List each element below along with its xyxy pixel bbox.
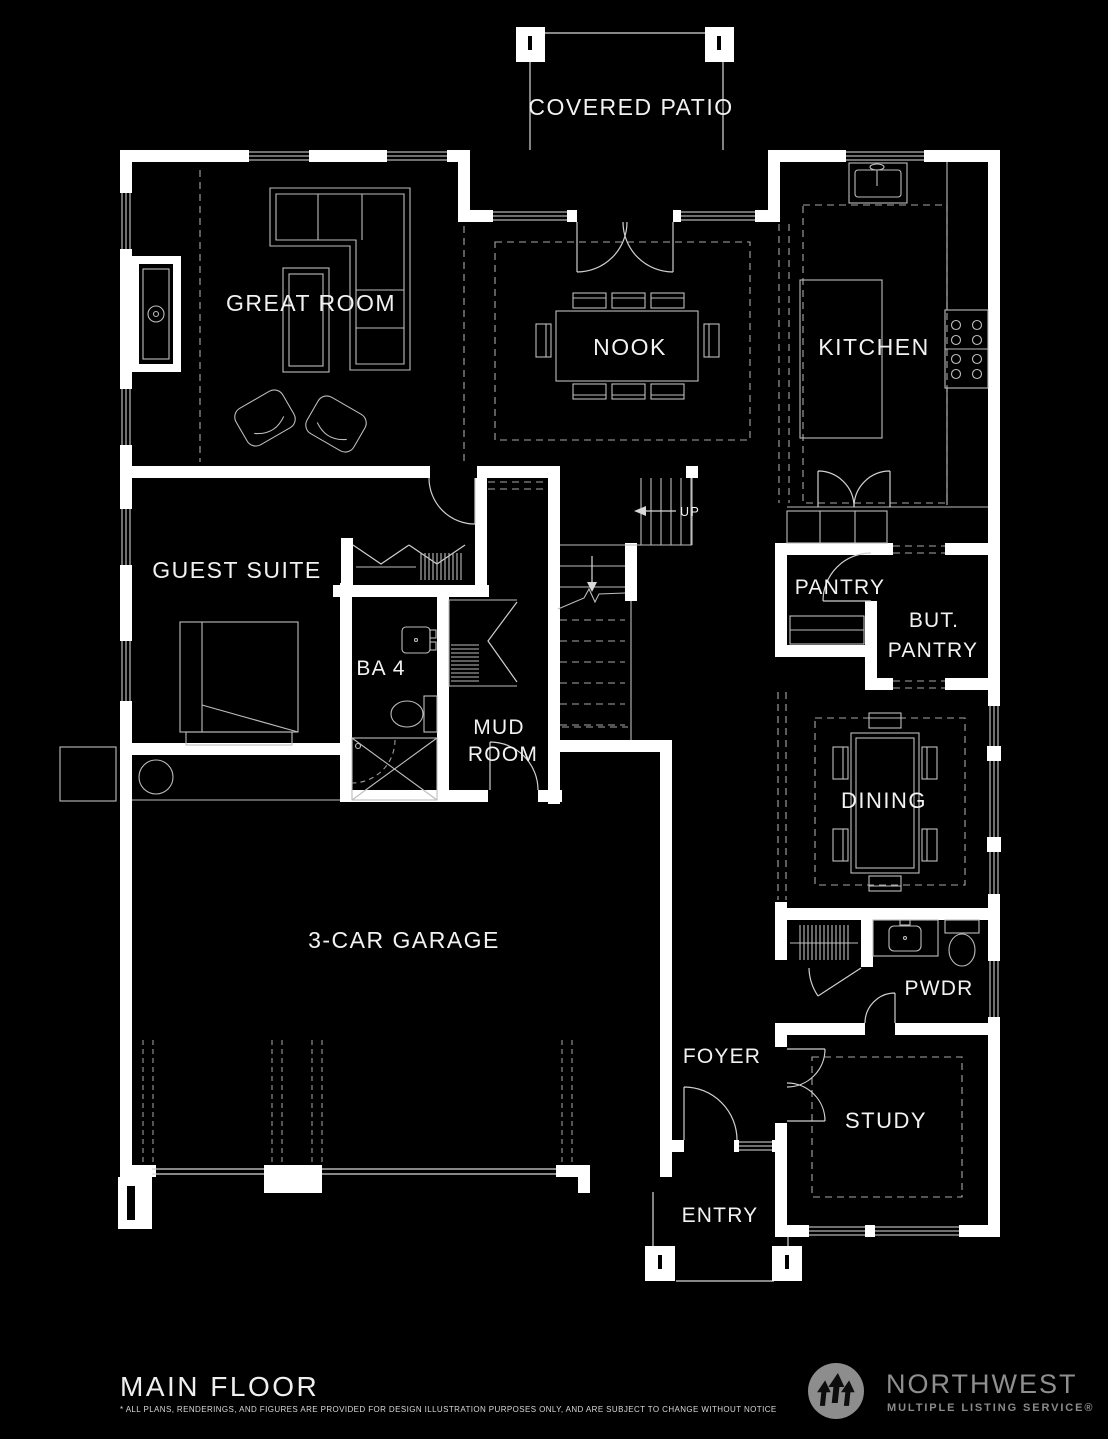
footer: MAIN FLOOR * ALL PLANS, RENDERINGS, AND …: [120, 1371, 777, 1414]
logo-tagline: MULTIPLE LISTING SERVICE®: [887, 1402, 1094, 1414]
label-stairs-up: UP: [680, 505, 700, 519]
label-pantry: PANTRY: [795, 576, 885, 599]
garage-door-tracks: [143, 1040, 572, 1163]
window: [243, 150, 315, 162]
window-dining: [987, 700, 1001, 900]
coat-closet: [790, 925, 858, 960]
powder-door: [865, 993, 895, 1023]
kitchen-french-door-right: [854, 471, 890, 507]
guest-closet-bifold: [353, 545, 465, 564]
powder-sink: [873, 920, 938, 956]
label-butlers-pantry: BUT.PANTRY: [888, 609, 978, 662]
window: [120, 635, 132, 707]
label-bath4: BA 4: [356, 657, 405, 680]
nwmls-logo: NORTHWEST MULTIPLE LISTING SERVICE®: [808, 1363, 1094, 1419]
window: [840, 150, 930, 162]
label-entry: ENTRY: [682, 1204, 759, 1227]
label-nook: NOOK: [593, 334, 667, 360]
window: [487, 210, 573, 222]
pantry-shelves: [790, 616, 864, 644]
patio-french-door-right: [623, 222, 673, 272]
stairs: [558, 478, 692, 740]
window: [381, 150, 453, 162]
hall-cabinet: [787, 511, 887, 543]
water-heater: [139, 760, 173, 794]
patio-pillar: [516, 27, 545, 62]
stair-break-line: [558, 589, 625, 609]
label-covered-patio: COVERED PATIO: [528, 94, 733, 120]
floor-title: MAIN FLOOR: [120, 1371, 319, 1402]
kitchen-french-door-left: [818, 471, 854, 507]
entry-pillar: [645, 1246, 675, 1281]
window: [120, 187, 132, 255]
window: [120, 383, 132, 451]
bed: [180, 622, 298, 745]
study-door-lower: [787, 1083, 825, 1121]
label-study: STUDY: [845, 1108, 927, 1133]
label-garage: 3-CAR GARAGE: [308, 927, 500, 953]
up-arrowhead: [634, 506, 646, 516]
window: [803, 1225, 871, 1237]
nwmls-trees-icon: [808, 1363, 864, 1419]
mud-closet: [449, 600, 517, 686]
floor-plan-canvas: COVERED PATIO GREAT ROOM NOOK KITCHEN GU…: [0, 0, 1108, 1439]
label-dining: DINING: [841, 788, 927, 813]
mud-closet-bifold: [488, 602, 517, 682]
sectional-sofa: [270, 188, 410, 370]
garage-doors: [152, 1169, 556, 1174]
exterior-pad: [60, 747, 116, 801]
coat-closet-door: [809, 968, 861, 996]
label-mud-room: MUDROOM: [468, 716, 538, 766]
patio-french-door-left: [577, 222, 627, 272]
fireplace: [131, 256, 181, 372]
armchair: [302, 392, 370, 455]
entry-pillar: [772, 1246, 802, 1281]
powder-toilet: [945, 920, 979, 966]
window-sidelite: [734, 1140, 777, 1152]
bath4-sink: [402, 627, 436, 653]
logo-name: NORTHWEST: [886, 1369, 1078, 1399]
window: [869, 1225, 965, 1237]
window: [675, 210, 761, 222]
guest-suite-door: [429, 478, 475, 524]
coffee-table: [283, 268, 329, 372]
window: [988, 955, 1000, 1023]
range: [945, 310, 988, 388]
window: [120, 503, 132, 571]
label-great-room: GREAT ROOM: [226, 290, 396, 316]
bath4-toilet: [391, 696, 437, 732]
floor-plan-page: COVERED PATIO GREAT ROOM NOOK KITCHEN GU…: [0, 0, 1108, 1439]
patio-outline: [530, 33, 723, 150]
armchair: [231, 386, 299, 449]
patio-pillar: [705, 27, 734, 62]
kitchen-sink: [849, 163, 907, 203]
front-door: [684, 1087, 737, 1140]
study-door-upper: [787, 1049, 825, 1087]
label-foyer: FOYER: [683, 1045, 761, 1068]
label-guest-suite: GUEST SUITE: [152, 557, 321, 583]
label-powder: PWDR: [905, 977, 974, 1000]
label-kitchen: KITCHEN: [818, 334, 929, 360]
plan-disclaimer: * ALL PLANS, RENDERINGS, AND FIGURES ARE…: [120, 1405, 777, 1414]
